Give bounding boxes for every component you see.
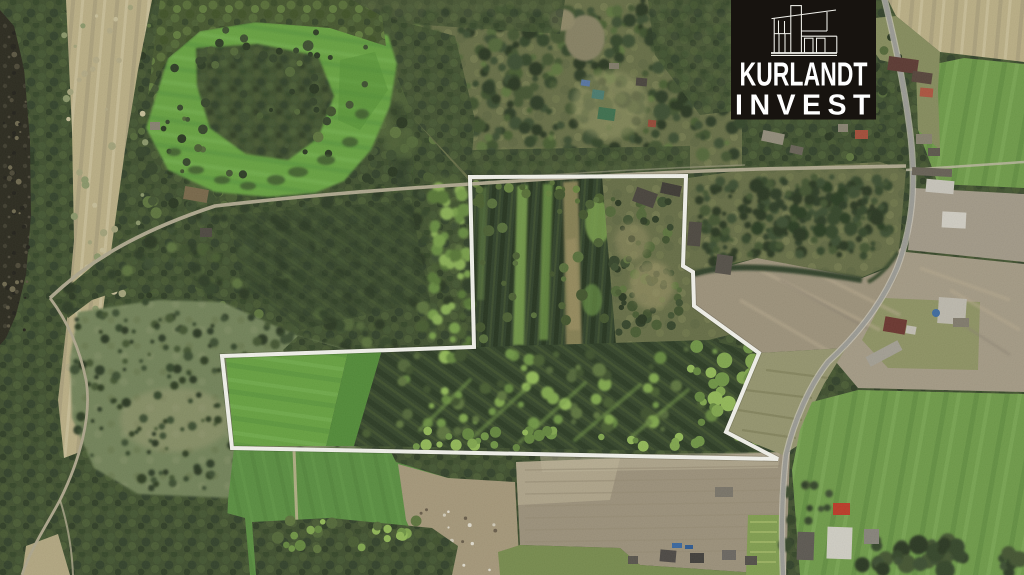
svg-text:KURLANDT: KURLANDT [740,57,868,94]
svg-text:INVEST: INVEST [735,90,877,122]
